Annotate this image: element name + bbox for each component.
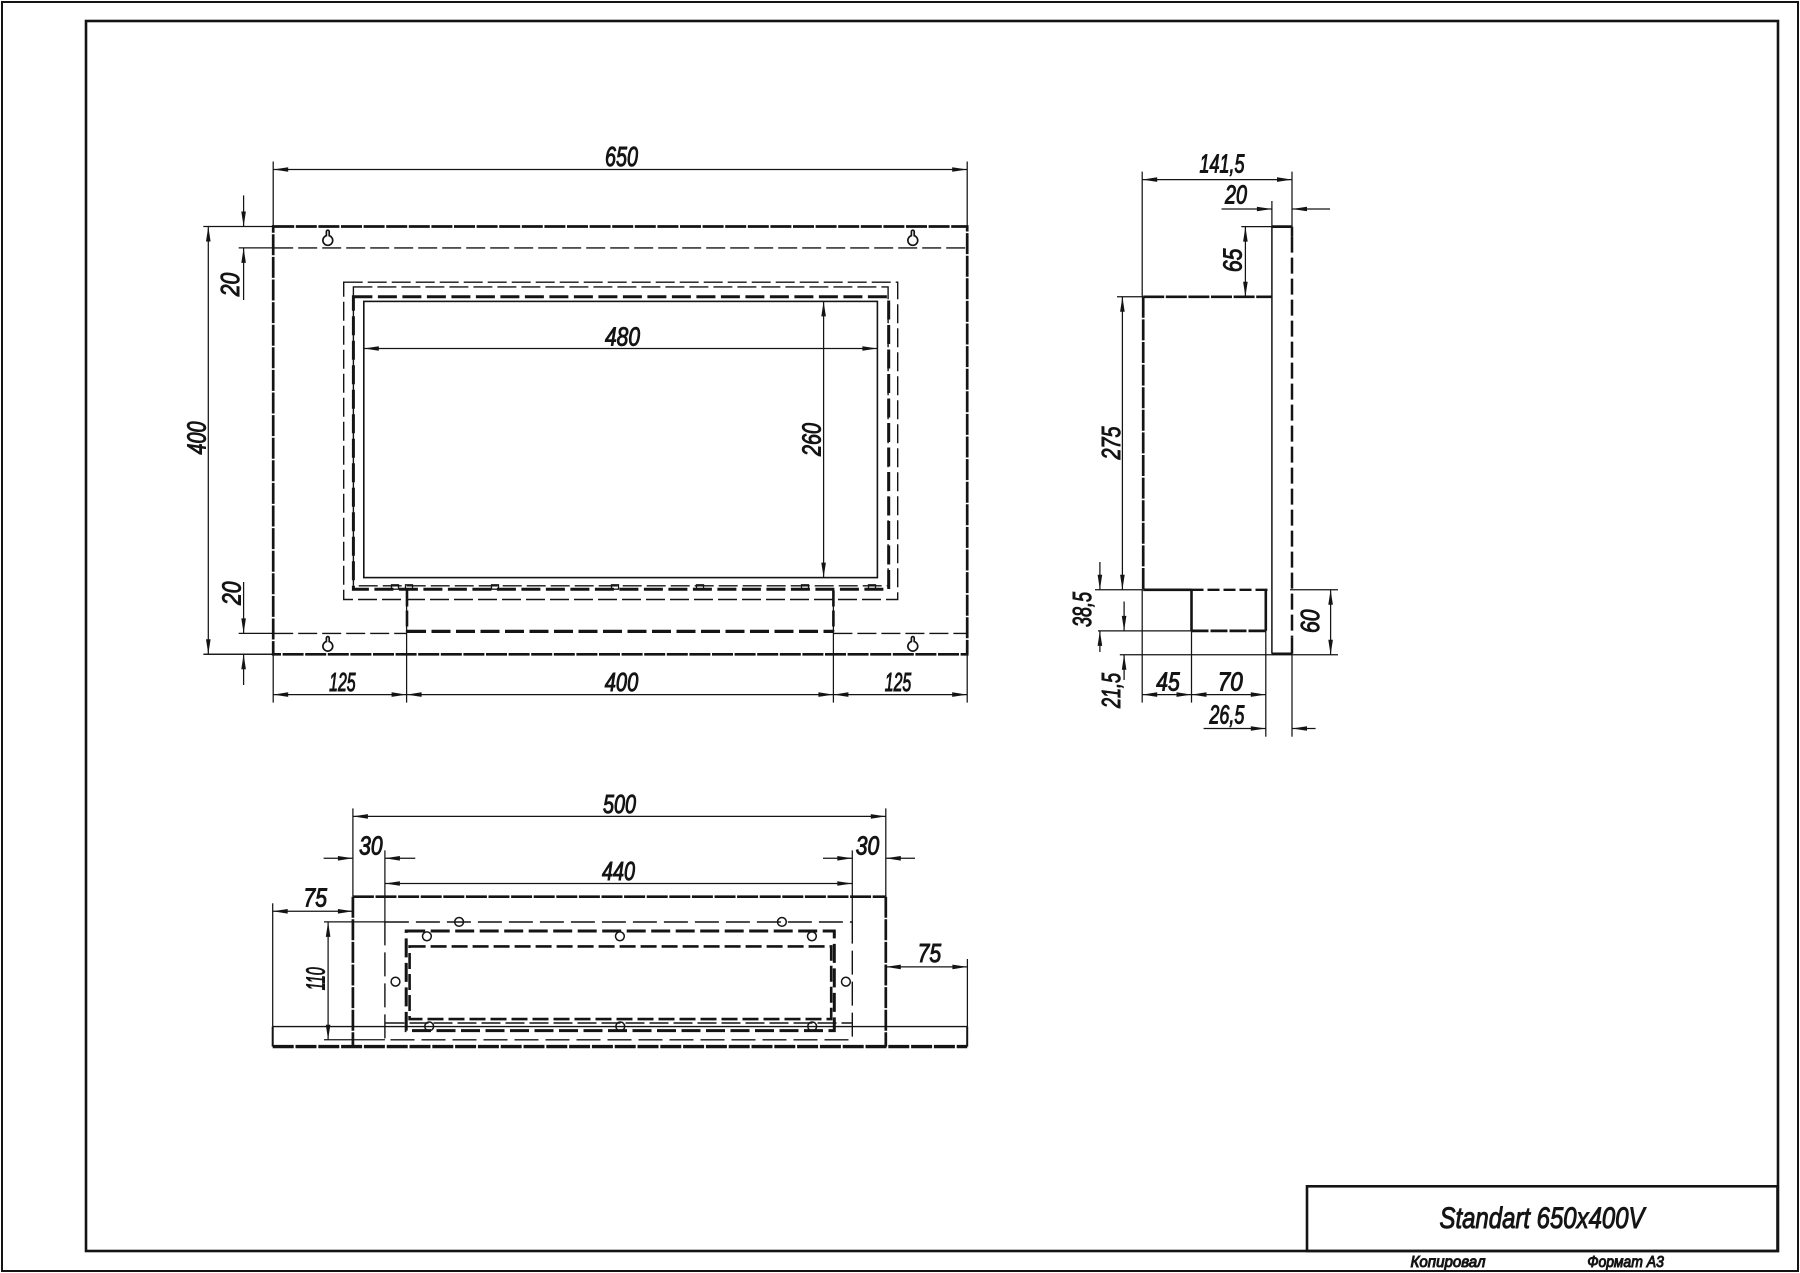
svg-text:125: 125 [885,667,912,697]
svg-text:45: 45 [1156,667,1180,697]
svg-text:21,5: 21,5 [1096,673,1126,709]
svg-text:75: 75 [918,938,942,968]
svg-text:480: 480 [605,321,640,351]
svg-text:38,5: 38,5 [1067,592,1097,627]
svg-text:20: 20 [1224,180,1247,210]
svg-text:Standart 650x400V: Standart 650x400V [1440,1202,1647,1235]
svg-text:20: 20 [215,272,245,297]
svg-text:30: 30 [359,830,383,860]
svg-text:500: 500 [603,789,636,819]
svg-text:65: 65 [1217,248,1247,272]
svg-text:400: 400 [181,421,211,454]
svg-text:275: 275 [1096,426,1126,460]
svg-text:20: 20 [217,581,247,606]
svg-text:125: 125 [329,667,356,697]
svg-text:Копировал: Копировал [1411,1254,1486,1271]
svg-text:141,5: 141,5 [1200,149,1245,179]
svg-text:260: 260 [796,423,826,457]
svg-text:30: 30 [856,830,880,860]
svg-text:75: 75 [304,883,328,913]
svg-text:440: 440 [602,856,635,886]
svg-text:60: 60 [1295,609,1325,633]
svg-text:70: 70 [1218,667,1243,697]
svg-text:26,5: 26,5 [1209,700,1245,730]
svg-text:Формат А3: Формат А3 [1587,1254,1664,1271]
svg-text:400: 400 [605,667,639,697]
svg-text:650: 650 [605,141,638,172]
svg-text:110: 110 [300,967,330,990]
